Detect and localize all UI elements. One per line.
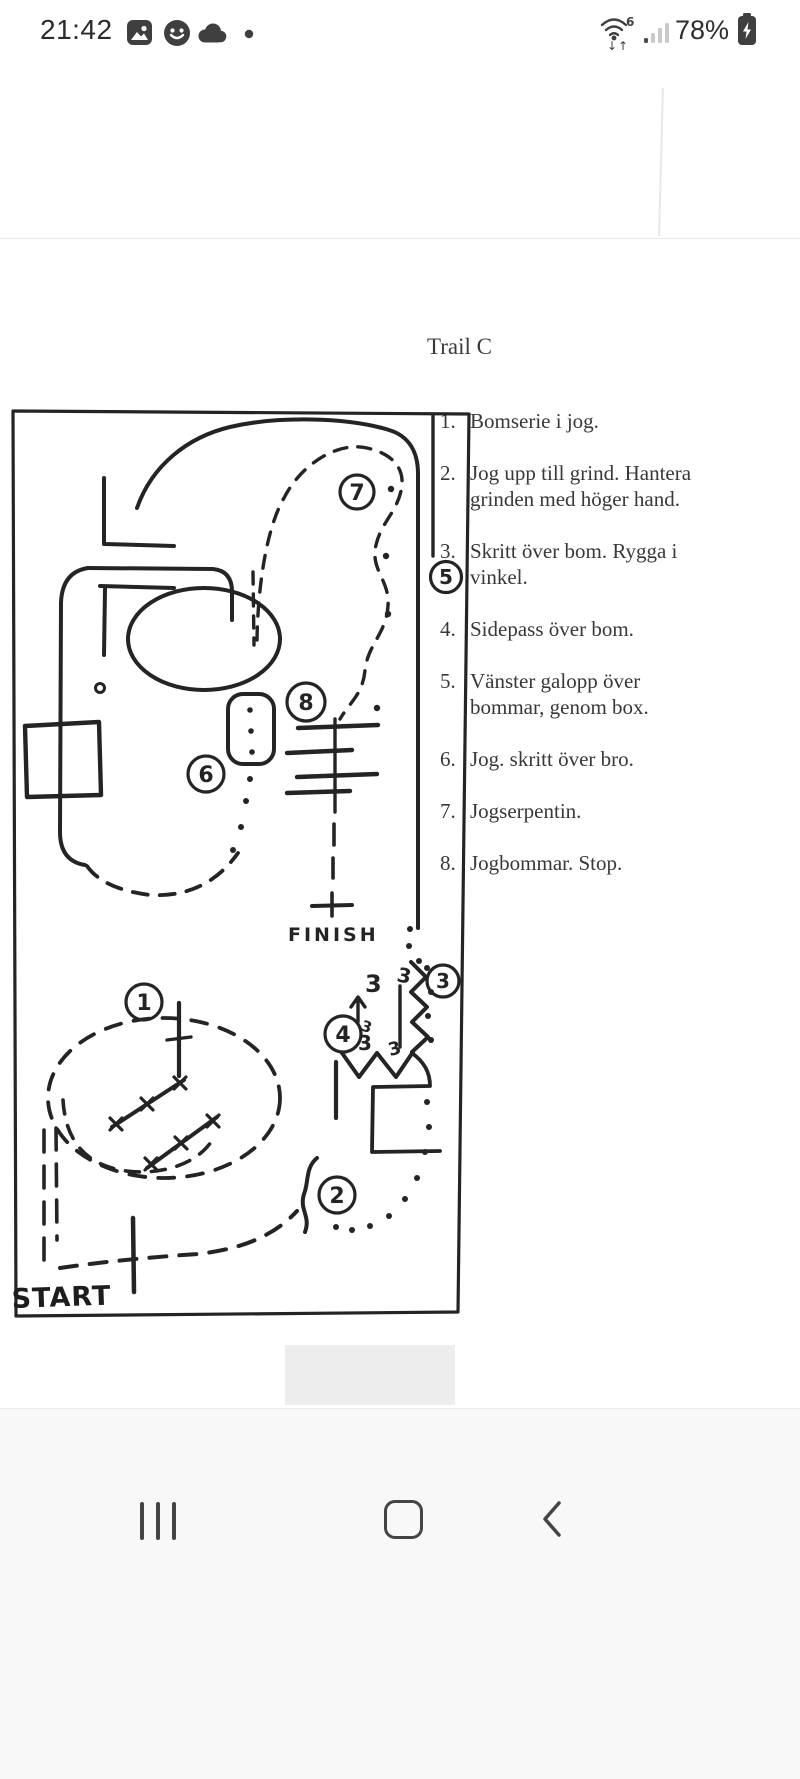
recents-icon[interactable] (140, 1502, 176, 1540)
svg-text:6: 6 (626, 15, 634, 29)
signal-icon (643, 20, 671, 44)
svg-text:↑: ↑ (618, 39, 628, 51)
bottom-pole (133, 1218, 134, 1292)
instruction-item: 5.Vänster galopp över bommar, genom box. (440, 668, 740, 720)
gate-squiggle (303, 1158, 317, 1232)
battery-percent: 78% (675, 15, 729, 46)
battery-charging-icon (737, 13, 757, 46)
cloud-icon (196, 22, 227, 44)
instruction-text: Sidepass över bom. (470, 616, 740, 642)
jog-poles (287, 719, 378, 812)
start-label: START (11, 1281, 112, 1315)
clock: 21:42 (40, 14, 113, 46)
notification-dot (244, 29, 254, 39)
phone-screen: { "status_bar": { "time": "21:42", "batt… (0, 0, 800, 1779)
svg-text:3: 3 (395, 962, 414, 988)
instruction-item: 1.Bomserie i jog. (440, 408, 740, 434)
serpentine-cones (374, 486, 394, 711)
instruction-item: 6.Jog. skritt över bro. (440, 746, 740, 772)
svg-text:1: 1 (136, 991, 151, 1016)
instruction-text: Jog upp till grind. Hantera grinden med … (470, 460, 740, 512)
diagonal-poles (110, 1077, 219, 1170)
navigation-bar (0, 1490, 800, 1560)
svg-text:3: 3 (365, 970, 382, 998)
instruction-item: 3.Skritt över bom. Rygga i vinkel. (440, 538, 740, 590)
svg-text:2: 2 (329, 1184, 344, 1209)
content-top-divider (0, 238, 800, 239)
instruction-text: Jog. skritt över bro. (470, 746, 740, 772)
svg-text:8: 8 (298, 691, 313, 716)
instruction-text: Jogbommar. Stop. (470, 850, 740, 876)
dot-trail-gate (333, 1099, 432, 1233)
svg-text:7: 7 (349, 481, 364, 506)
gallery-icon (126, 19, 153, 46)
course-line-solid (137, 419, 418, 928)
instruction-list: 1.Bomserie i jog. 2.Jog upp till grind. … (440, 408, 740, 902)
bottom-zone (0, 1408, 800, 1779)
page-title: Trail C (427, 334, 492, 360)
svg-text:3: 3 (359, 1017, 374, 1037)
pole-1 (167, 1003, 191, 1076)
bridge-obstacle (228, 694, 274, 764)
box-obstacle (25, 722, 101, 797)
start-loop-dashed (44, 1018, 297, 1273)
wifi-icon: 6 ↓ ↑ (599, 13, 641, 51)
dot-trail-bridge (230, 776, 253, 853)
svg-text:6: 6 (198, 763, 213, 788)
instruction-item: 7.Jogserpentin. (440, 798, 740, 824)
pole-count-labels: 3 3 3 3 3 (358, 962, 414, 1060)
home-icon[interactable] (384, 1500, 423, 1539)
back-icon[interactable] (540, 1500, 564, 1538)
instruction-item: 2.Jog upp till grind. Hantera grinden me… (440, 460, 740, 512)
instruction-text: Bomserie i jog. (470, 408, 740, 434)
status-bar: 21:42 6 ↓ ↑ (0, 0, 800, 56)
svg-text:5: 5 (439, 565, 453, 589)
svg-text:4: 4 (335, 1023, 350, 1048)
instruction-text: Jogserpentin. (470, 798, 740, 824)
smiley-icon (163, 19, 191, 47)
svg-text:3: 3 (436, 969, 450, 993)
instruction-item: 8.Jogbommar. Stop. (440, 850, 740, 876)
course-loop (60, 568, 280, 895)
course-map-drawing: 1 2 3 4 5 6 7 8 3 3 3 3 3 FINISH START (0, 400, 480, 1325)
svg-text:↓: ↓ (607, 39, 617, 51)
nav-divider (0, 1408, 800, 1409)
instruction-item: 4.Sidepass över bom. (440, 616, 740, 642)
serpentine-path (257, 447, 402, 719)
instruction-text: Skritt över bom. Rygga i vinkel. (470, 538, 740, 590)
finish-label: FINISH (288, 924, 379, 946)
course-markers (126, 475, 462, 1213)
instruction-text: Vänster galopp över bommar, genom box. (470, 668, 740, 720)
scan-artifact-line (658, 88, 664, 236)
finish-approach (312, 824, 352, 916)
scan-gray-patch (285, 1345, 455, 1405)
